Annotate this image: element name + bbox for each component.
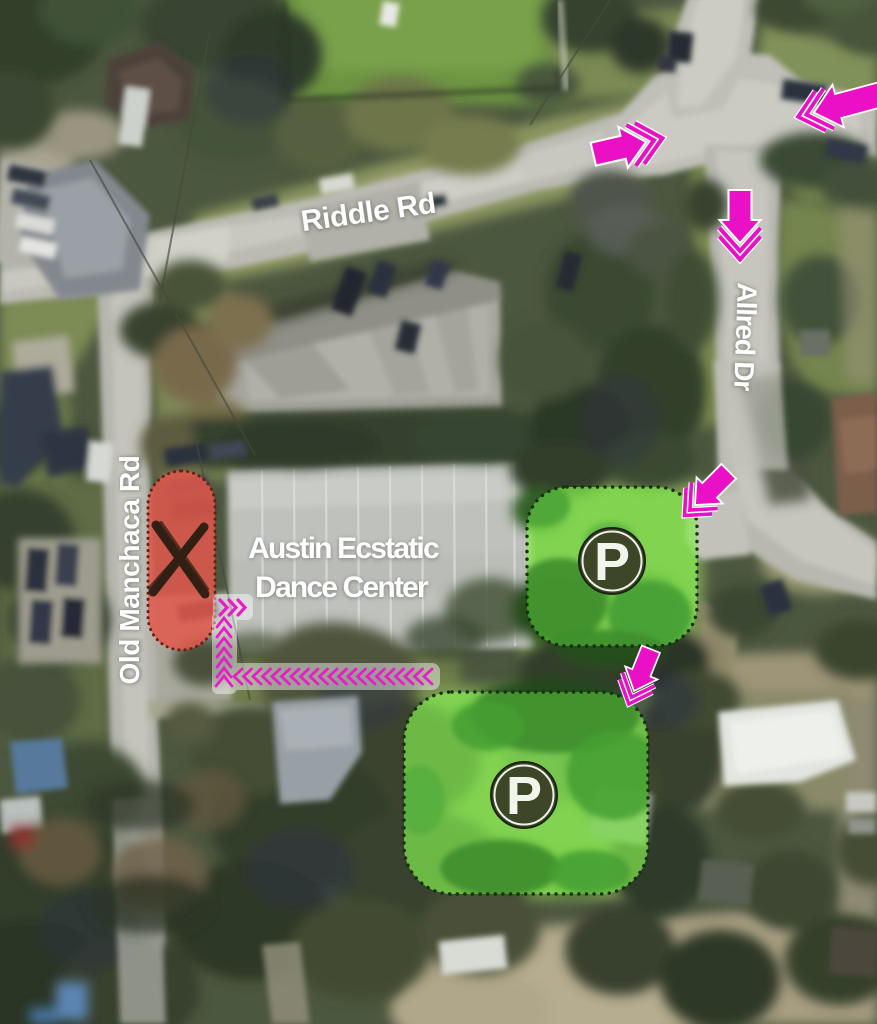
svg-text:Dance Center: Dance Center <box>255 571 429 604</box>
svg-text:P: P <box>594 532 630 592</box>
svg-text:Old Manchaca Rd: Old Manchaca Rd <box>114 456 145 685</box>
svg-text:P: P <box>506 766 542 826</box>
svg-text:Austin Ecstatic: Austin Ecstatic <box>248 532 439 565</box>
svg-text:Allred Dr: Allred Dr <box>728 282 763 392</box>
